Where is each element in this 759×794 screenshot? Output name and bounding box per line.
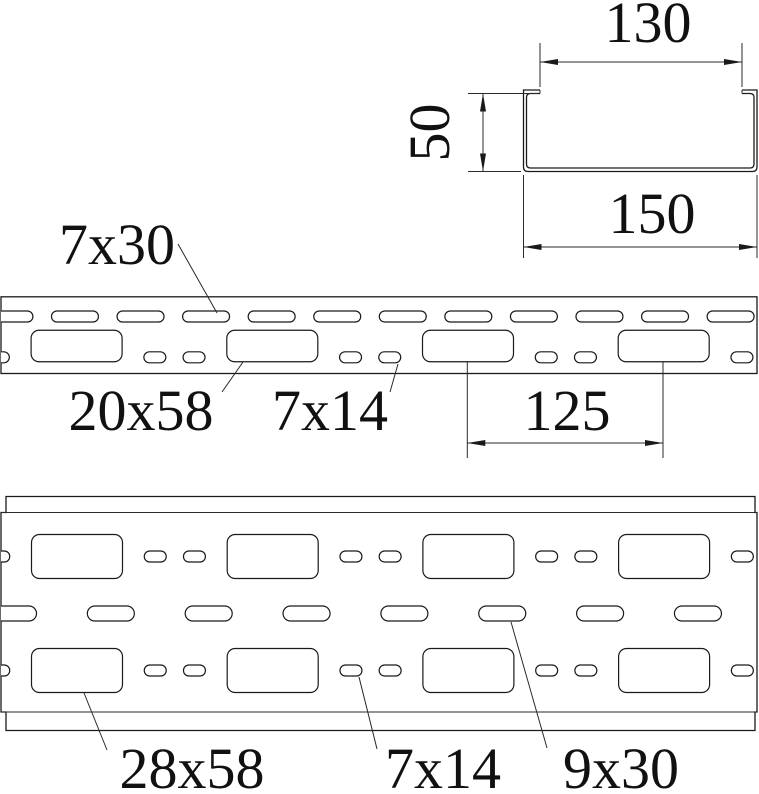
slot-hole (185, 606, 232, 621)
slot-hole (575, 665, 597, 676)
slot-hole (283, 606, 330, 621)
slot-hole (619, 535, 710, 579)
arrowhead-left (540, 59, 558, 65)
slot-hole (576, 311, 623, 322)
label-7x14-side: 7x14 (272, 378, 388, 443)
slot-hole (731, 665, 753, 676)
arrowhead-left (524, 244, 542, 250)
slot-hole (423, 649, 514, 693)
label-20x58: 20x58 (69, 378, 214, 443)
slot-hole (144, 352, 166, 363)
extension-lines-50 (468, 94, 538, 172)
sheet-edge-caps (540, 90, 742, 94)
slot-hole (183, 311, 230, 322)
slot-hole (144, 665, 166, 676)
slot-hole (340, 665, 362, 676)
slot-hole (618, 330, 709, 362)
slot-hole (144, 551, 166, 562)
slot-hole (731, 352, 753, 363)
slot-hole (379, 665, 401, 676)
arrowhead-top (480, 94, 486, 112)
callout-7x14-side: 7x14 (272, 364, 398, 443)
slot-hole (248, 311, 295, 322)
slot-hole (731, 551, 753, 562)
bottom-development-view: 28x58 7x14 9x30 (0, 497, 759, 794)
slot-hole (183, 352, 205, 363)
dim-50-text: 50 (397, 104, 462, 162)
slot-hole (0, 551, 10, 562)
dim-150-text: 150 (609, 181, 696, 246)
dim-125-text: 125 (524, 378, 611, 443)
arrowhead-bottom (480, 154, 486, 172)
callout-7x14-bottom: 7x14 (359, 677, 501, 794)
leader-line (511, 622, 547, 748)
callout-9x30: 9x30 (511, 622, 679, 794)
slot-hole (0, 311, 33, 322)
slot-hole (707, 311, 754, 322)
slot-hole (117, 311, 164, 322)
channel-profile-outer (524, 90, 758, 172)
slot-hole (340, 352, 362, 363)
slot-hole (227, 330, 318, 362)
label-7x14-bottom: 7x14 (385, 736, 501, 794)
dimension-150: 150 (524, 175, 758, 258)
label-28x58: 28x58 (120, 736, 265, 794)
slot-hole (0, 665, 10, 676)
slot-hole (340, 551, 362, 562)
leader-line (359, 677, 377, 749)
leader-line (178, 244, 217, 313)
channel-profile-inner (527, 94, 755, 169)
slot-hole (535, 352, 557, 363)
slot-hole (536, 665, 558, 676)
slot-hole (479, 606, 526, 621)
slot-hole (423, 535, 514, 579)
slot-hole (379, 311, 426, 322)
dimension-130: 130 (540, 0, 742, 87)
label-7x30: 7x30 (59, 212, 175, 277)
slot-hole (510, 311, 557, 322)
leader-line (390, 364, 398, 392)
callout-7x30: 7x30 (59, 212, 217, 313)
slot-hole (445, 311, 492, 322)
technical-drawing-canvas: 130 50 150 7x30 20x58 (0, 0, 759, 794)
slot-hole (227, 649, 318, 693)
slot-hole (574, 352, 596, 363)
slot-hole (575, 551, 597, 562)
label-9x30: 9x30 (563, 736, 679, 794)
slot-hole (227, 535, 318, 579)
slot-hole (0, 606, 37, 621)
slot-hole (577, 606, 624, 621)
callout-28x58: 28x58 (84, 693, 265, 794)
leader-line (222, 362, 243, 392)
slot-hole (381, 606, 428, 621)
slot-hole (0, 352, 9, 363)
slot-hole (31, 330, 122, 362)
slot-hole (32, 649, 123, 693)
leader-line (84, 693, 107, 750)
slot-hole (32, 535, 123, 579)
slot-hole (619, 649, 710, 693)
slot-hole (536, 551, 558, 562)
slot-hole (183, 665, 205, 676)
slot-hole (379, 352, 401, 363)
slot-hole (379, 551, 401, 562)
slot-hole (423, 330, 514, 362)
slot-hole (642, 311, 689, 322)
arrowhead-left (467, 440, 485, 446)
slot-hole (314, 311, 361, 322)
arrowhead-right (645, 440, 663, 446)
slot-hole (87, 606, 134, 621)
slot-hole (183, 551, 205, 562)
arrowhead-right (739, 244, 757, 250)
dim-130-text: 130 (605, 0, 692, 55)
dimension-125: 125 (467, 362, 663, 458)
slot-hole (674, 606, 721, 621)
side-rail-view: 7x30 20x58 7x14 125 (0, 212, 759, 458)
arrowhead-right (724, 59, 742, 65)
slot-hole (51, 311, 98, 322)
dimension-50: 50 (397, 94, 538, 172)
cross-section-view: 130 50 150 (397, 0, 757, 258)
